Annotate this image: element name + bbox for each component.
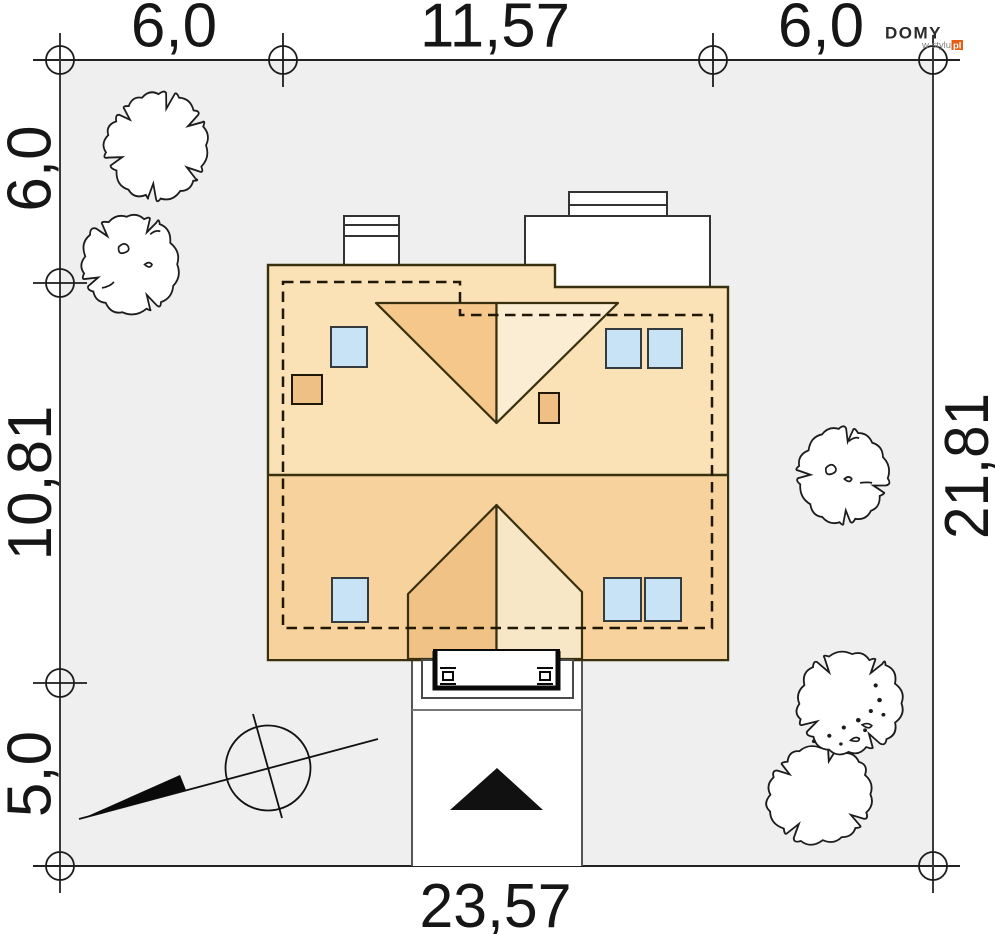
svg-text:11,57: 11,57 <box>420 0 570 61</box>
svg-text:21,81: 21,81 <box>933 393 995 539</box>
svg-text:23,57: 23,57 <box>420 872 572 934</box>
svg-text:w stylu: w stylu <box>921 40 951 51</box>
svg-text:6,0: 6,0 <box>0 125 65 211</box>
svg-text:5,0: 5,0 <box>0 731 65 817</box>
svg-text:10,81: 10,81 <box>0 406 65 561</box>
svg-text:6,0: 6,0 <box>778 0 864 61</box>
svg-text:6,0: 6,0 <box>131 0 217 61</box>
svg-text:pl: pl <box>953 41 961 52</box>
